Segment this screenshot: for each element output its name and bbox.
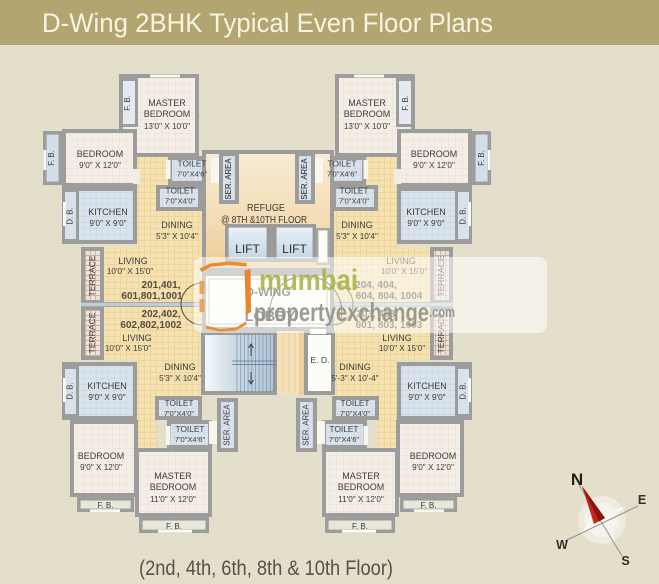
svg-text:DINING: DINING xyxy=(161,220,193,230)
svg-text:F. B.: F. B. xyxy=(420,501,436,510)
svg-text:TOILET: TOILET xyxy=(340,186,369,196)
svg-text:BEDROOM: BEDROOM xyxy=(78,451,125,461)
svg-text:F. B.: F. B. xyxy=(47,150,56,166)
svg-text:KITCHEN: KITCHEN xyxy=(87,381,127,391)
svg-text:9'0" X 9'0": 9'0" X 9'0" xyxy=(408,393,445,402)
svg-text:D. B.: D. B. xyxy=(66,207,75,224)
svg-text:202,402,: 202,402, xyxy=(142,309,181,320)
svg-text:TOILET: TOILET xyxy=(328,159,357,169)
svg-text:7'0"X4'6": 7'0"X4'6" xyxy=(177,170,208,179)
svg-text:7'0"X4'0": 7'0"X4'0" xyxy=(339,197,370,206)
svg-text:7'0"X4'0": 7'0"X4'0" xyxy=(340,409,371,418)
svg-text:KITCHEN: KITCHEN xyxy=(407,381,447,391)
svg-text:BEDROOM: BEDROOM xyxy=(150,482,197,492)
svg-text:BEDROOM: BEDROOM xyxy=(338,482,385,492)
svg-text:BEDROOM: BEDROOM xyxy=(144,109,191,119)
svg-text:7'0"X4'0": 7'0"X4'0" xyxy=(165,197,196,206)
svg-text:LIFT: LIFT xyxy=(235,242,260,256)
svg-text:LIVING: LIVING xyxy=(118,256,148,266)
svg-text:13'0" X 10'0": 13'0" X 10'0" xyxy=(144,122,190,131)
svg-text:TOILET: TOILET xyxy=(341,398,370,408)
svg-text:9'0" X 12'0": 9'0" X 12'0" xyxy=(79,161,121,170)
svg-text:F. B.: F. B. xyxy=(477,150,486,166)
svg-text:(2nd, 4th, 6th, 8th & 10th Flo: (2nd, 4th, 6th, 8th & 10th Floor) xyxy=(139,557,393,580)
svg-text:SER. AREA: SER. AREA xyxy=(300,158,309,200)
svg-text:7'0"X4'6": 7'0"X4'6" xyxy=(327,170,358,179)
svg-text:MASTER: MASTER xyxy=(342,471,380,481)
svg-text:S: S xyxy=(621,554,629,568)
svg-text:9'0" X 12'0": 9'0" X 12'0" xyxy=(412,463,454,472)
svg-text:KITCHEN: KITCHEN xyxy=(88,207,128,217)
svg-text:11'0" X 12'0": 11'0" X 12'0" xyxy=(338,495,384,504)
svg-text:BEDROOM: BEDROOM xyxy=(344,109,391,119)
svg-text:MASTER: MASTER xyxy=(154,471,192,481)
svg-text:TOILET: TOILET xyxy=(166,186,195,196)
svg-text:TOILET: TOILET xyxy=(330,424,359,434)
svg-text:F. B.: F. B. xyxy=(352,522,368,531)
svg-text:TERRACE: TERRACE xyxy=(87,312,97,353)
svg-text:9'0" X 9'0": 9'0" X 9'0" xyxy=(89,219,126,228)
svg-text:SER. AREA: SER. AREA xyxy=(224,158,233,200)
svg-text:10'0" X 15'0": 10'0" X 15'0" xyxy=(107,267,153,276)
svg-text:9'0" X 9'0": 9'0" X 9'0" xyxy=(407,219,444,228)
svg-text:mumbai: mumbai xyxy=(259,264,358,297)
svg-text:602,802,1002: 602,802,1002 xyxy=(120,320,182,331)
svg-text:MASTER: MASTER xyxy=(348,98,386,108)
svg-text:F. B.: F. B. xyxy=(401,95,410,111)
svg-text:F. B.: F. B. xyxy=(97,501,113,510)
svg-text:SER. AREA: SER. AREA xyxy=(223,404,232,446)
svg-text:N: N xyxy=(571,470,583,489)
svg-text:7'0"X4'6": 7'0"X4'6" xyxy=(175,435,206,444)
svg-text:13'0" X 10'0": 13'0" X 10'0" xyxy=(344,122,390,131)
svg-text:LIVING: LIVING xyxy=(122,333,152,343)
svg-text:11'0" X 12'0": 11'0" X 12'0" xyxy=(150,495,196,504)
svg-text:E. D.: E. D. xyxy=(311,355,330,365)
svg-text:W: W xyxy=(556,538,568,552)
svg-text:TOILET: TOILET xyxy=(176,424,205,434)
svg-text:BEDROOM: BEDROOM xyxy=(77,149,124,159)
svg-text:9'0" X 12'0": 9'0" X 12'0" xyxy=(80,463,122,472)
svg-text:TOILET: TOILET xyxy=(178,159,207,169)
svg-text:9'0" X 9'0": 9'0" X 9'0" xyxy=(88,393,125,402)
svg-text:9'0" X 12'0": 9'0" X 12'0" xyxy=(413,161,455,170)
svg-text:TOILET: TOILET xyxy=(165,398,194,408)
svg-text:DINING: DINING xyxy=(339,362,371,372)
svg-text:E: E xyxy=(638,493,646,507)
svg-text:D. B.: D. B. xyxy=(66,382,75,399)
svg-text:F. B.: F. B. xyxy=(123,95,132,111)
svg-text:5'3" X 10'4": 5'3" X 10'4" xyxy=(156,232,198,241)
svg-text:propertyexchange: propertyexchange xyxy=(254,297,429,327)
svg-text:TERRACE: TERRACE xyxy=(87,255,97,296)
svg-text:5'-3" X 10'-4": 5'-3" X 10'-4" xyxy=(331,374,378,383)
svg-text:DINING: DINING xyxy=(164,362,196,372)
svg-text:MASTER: MASTER xyxy=(148,98,186,108)
svg-text:SER. AREA: SER. AREA xyxy=(302,404,311,446)
svg-text:KITCHEN: KITCHEN xyxy=(406,207,446,217)
svg-text:10'0" X 15'0": 10'0" X 15'0" xyxy=(379,344,425,353)
svg-text:REFUGE: REFUGE xyxy=(247,202,285,214)
svg-text:201,401,: 201,401, xyxy=(142,280,181,291)
svg-text:BEDROOM: BEDROOM xyxy=(410,451,457,461)
svg-text:.com: .com xyxy=(429,305,455,321)
svg-text:F. B.: F. B. xyxy=(166,522,182,531)
svg-text:BEDROOM: BEDROOM xyxy=(411,149,458,159)
svg-text:5'3" X 10'4": 5'3" X 10'4" xyxy=(159,374,201,383)
svg-text:601,801,1001: 601,801,1001 xyxy=(121,291,183,302)
svg-text:D. B.: D. B. xyxy=(459,382,468,399)
svg-text:D. B.: D. B. xyxy=(459,207,468,224)
svg-text:LIVING: LIVING xyxy=(382,333,412,343)
svg-text:D-Wing 2BHK Typical Even Floor: D-Wing 2BHK Typical Even Floor Plans xyxy=(42,8,493,38)
svg-text:DINING: DINING xyxy=(341,220,373,230)
svg-text:7'0"X4'6": 7'0"X4'6" xyxy=(329,435,360,444)
svg-text:10'0" X 15'0": 10'0" X 15'0" xyxy=(105,344,151,353)
svg-text:5'3" X 10'4": 5'3" X 10'4" xyxy=(336,232,378,241)
svg-text:LIFT: LIFT xyxy=(282,242,307,256)
svg-text:7'0"X4'0": 7'0"X4'0" xyxy=(164,409,195,418)
